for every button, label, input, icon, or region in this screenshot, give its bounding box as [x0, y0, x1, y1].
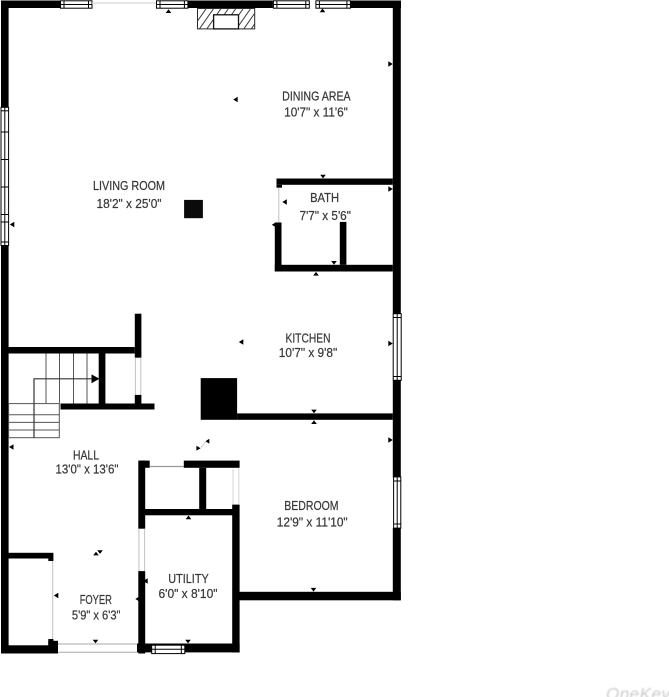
svg-text:UTILITY: UTILITY — [168, 571, 209, 586]
svg-text:10'7" x 11'6": 10'7" x 11'6" — [284, 104, 348, 119]
svg-text:BATH: BATH — [310, 190, 339, 205]
svg-text:HALL: HALL — [73, 448, 99, 463]
svg-text:FOYER: FOYER — [80, 592, 112, 607]
svg-text:12'9" x 11'10": 12'9" x 11'10" — [277, 515, 348, 530]
svg-text:BEDROOM: BEDROOM — [284, 498, 338, 513]
svg-text:5'9" x 6'3": 5'9" x 6'3" — [72, 607, 121, 622]
svg-text:18'2" x 25'0": 18'2" x 25'0" — [97, 196, 162, 211]
svg-text:6'0" x 8'10": 6'0" x 8'10" — [159, 586, 218, 601]
svg-text:7'7" x 5'6": 7'7" x 5'6" — [300, 208, 351, 223]
svg-text:13'0" x 13'6": 13'0" x 13'6" — [56, 462, 119, 477]
svg-text:KITCHEN: KITCHEN — [286, 331, 331, 346]
svg-text:OneKey MLS: OneKey MLS — [606, 685, 669, 697]
svg-text:LIVING ROOM: LIVING ROOM — [93, 178, 165, 193]
svg-text:DINING AREA: DINING AREA — [282, 89, 351, 104]
svg-text:10'7" x 9'8": 10'7" x 9'8" — [279, 345, 338, 360]
